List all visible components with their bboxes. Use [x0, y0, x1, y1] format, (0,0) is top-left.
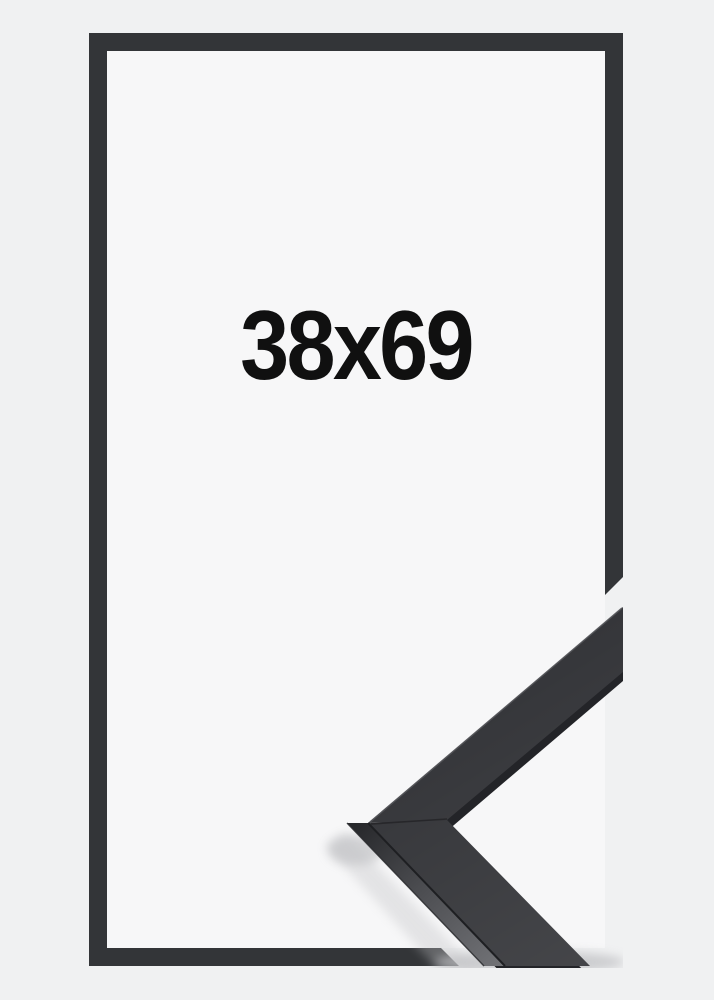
frame-outline-bottom-bar [89, 948, 459, 966]
frame-illustration [0, 0, 714, 1000]
product-image: 38x69 [0, 0, 714, 1000]
frame-outline-top-bar [89, 33, 623, 51]
inner-mat-area [107, 51, 605, 948]
frame-outline-right-bar [605, 33, 623, 595]
size-label: 38x69 [132, 296, 580, 394]
frame-outline-left-bar [89, 33, 107, 966]
